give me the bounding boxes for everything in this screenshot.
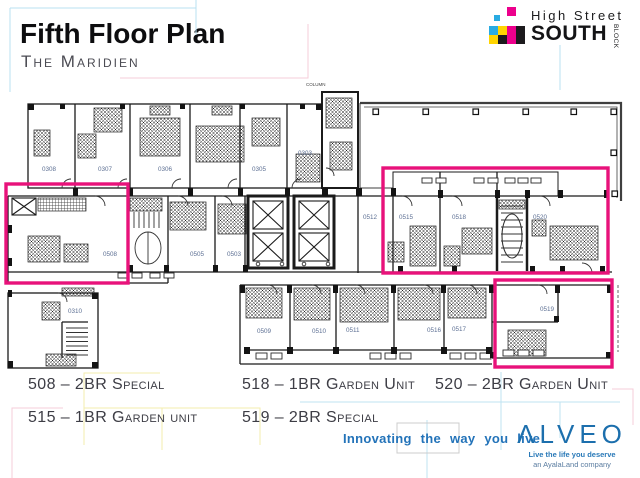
unit-number-0305: 0305 <box>252 166 267 173</box>
unit-number-0509: 0509 <box>257 328 272 335</box>
legend-item: 519 – 2BR Special <box>242 409 435 431</box>
unit-number-0308: 0308 <box>42 166 57 173</box>
hatch-blocks <box>28 98 598 366</box>
alveo-company-line: an AyalaLand company <box>510 460 634 469</box>
unit-number-0307: 0307 <box>98 166 113 173</box>
unit-number-0510: 0510 <box>312 328 327 335</box>
unit-number-0518: 0518 <box>452 214 467 221</box>
unit-number-0503: 0503 <box>227 251 242 258</box>
alveo-logo: ΛLVEO Live the life you deserve an Ayala… <box>510 419 634 469</box>
unit-number-0505: 0505 <box>190 251 205 258</box>
terrace-outline <box>360 103 621 201</box>
unit-number-0303: 0303 <box>298 150 313 157</box>
unit-number-0515: 0515 <box>399 214 414 221</box>
unit-number-0517: 0517 <box>452 326 467 333</box>
unit-number-0511: 0511 <box>346 327 360 334</box>
unit-number-0310: 0310 <box>68 308 83 315</box>
legend-item: 518 – 1BR Garden Unit <box>242 376 435 398</box>
unit-number-0516: 0516 <box>427 327 442 334</box>
unit-number-0508: 0508 <box>103 251 118 258</box>
unit-number-0306: 0306 <box>158 166 173 173</box>
unit-number-0519: 0519 <box>540 306 555 313</box>
alveo-wordmark: ΛLVEO <box>510 419 634 449</box>
legend-item: 515 – 1BR Garden unit <box>28 409 242 431</box>
unit-number-0512: 0512 <box>363 214 378 221</box>
slide: Fifth Floor Plan The Maridien High Stree… <box>0 0 640 478</box>
floor-plan-walls <box>8 92 618 368</box>
legend-item: 508 – 2BR Special <box>28 376 242 398</box>
legend-item: 520 – 2BR Garden Unit <box>435 376 608 398</box>
unit-number-0520: 0520 <box>533 214 548 221</box>
alveo-slogan: Live the life you deserve <box>510 450 634 459</box>
plan-note: COLUMN <box>306 82 326 87</box>
